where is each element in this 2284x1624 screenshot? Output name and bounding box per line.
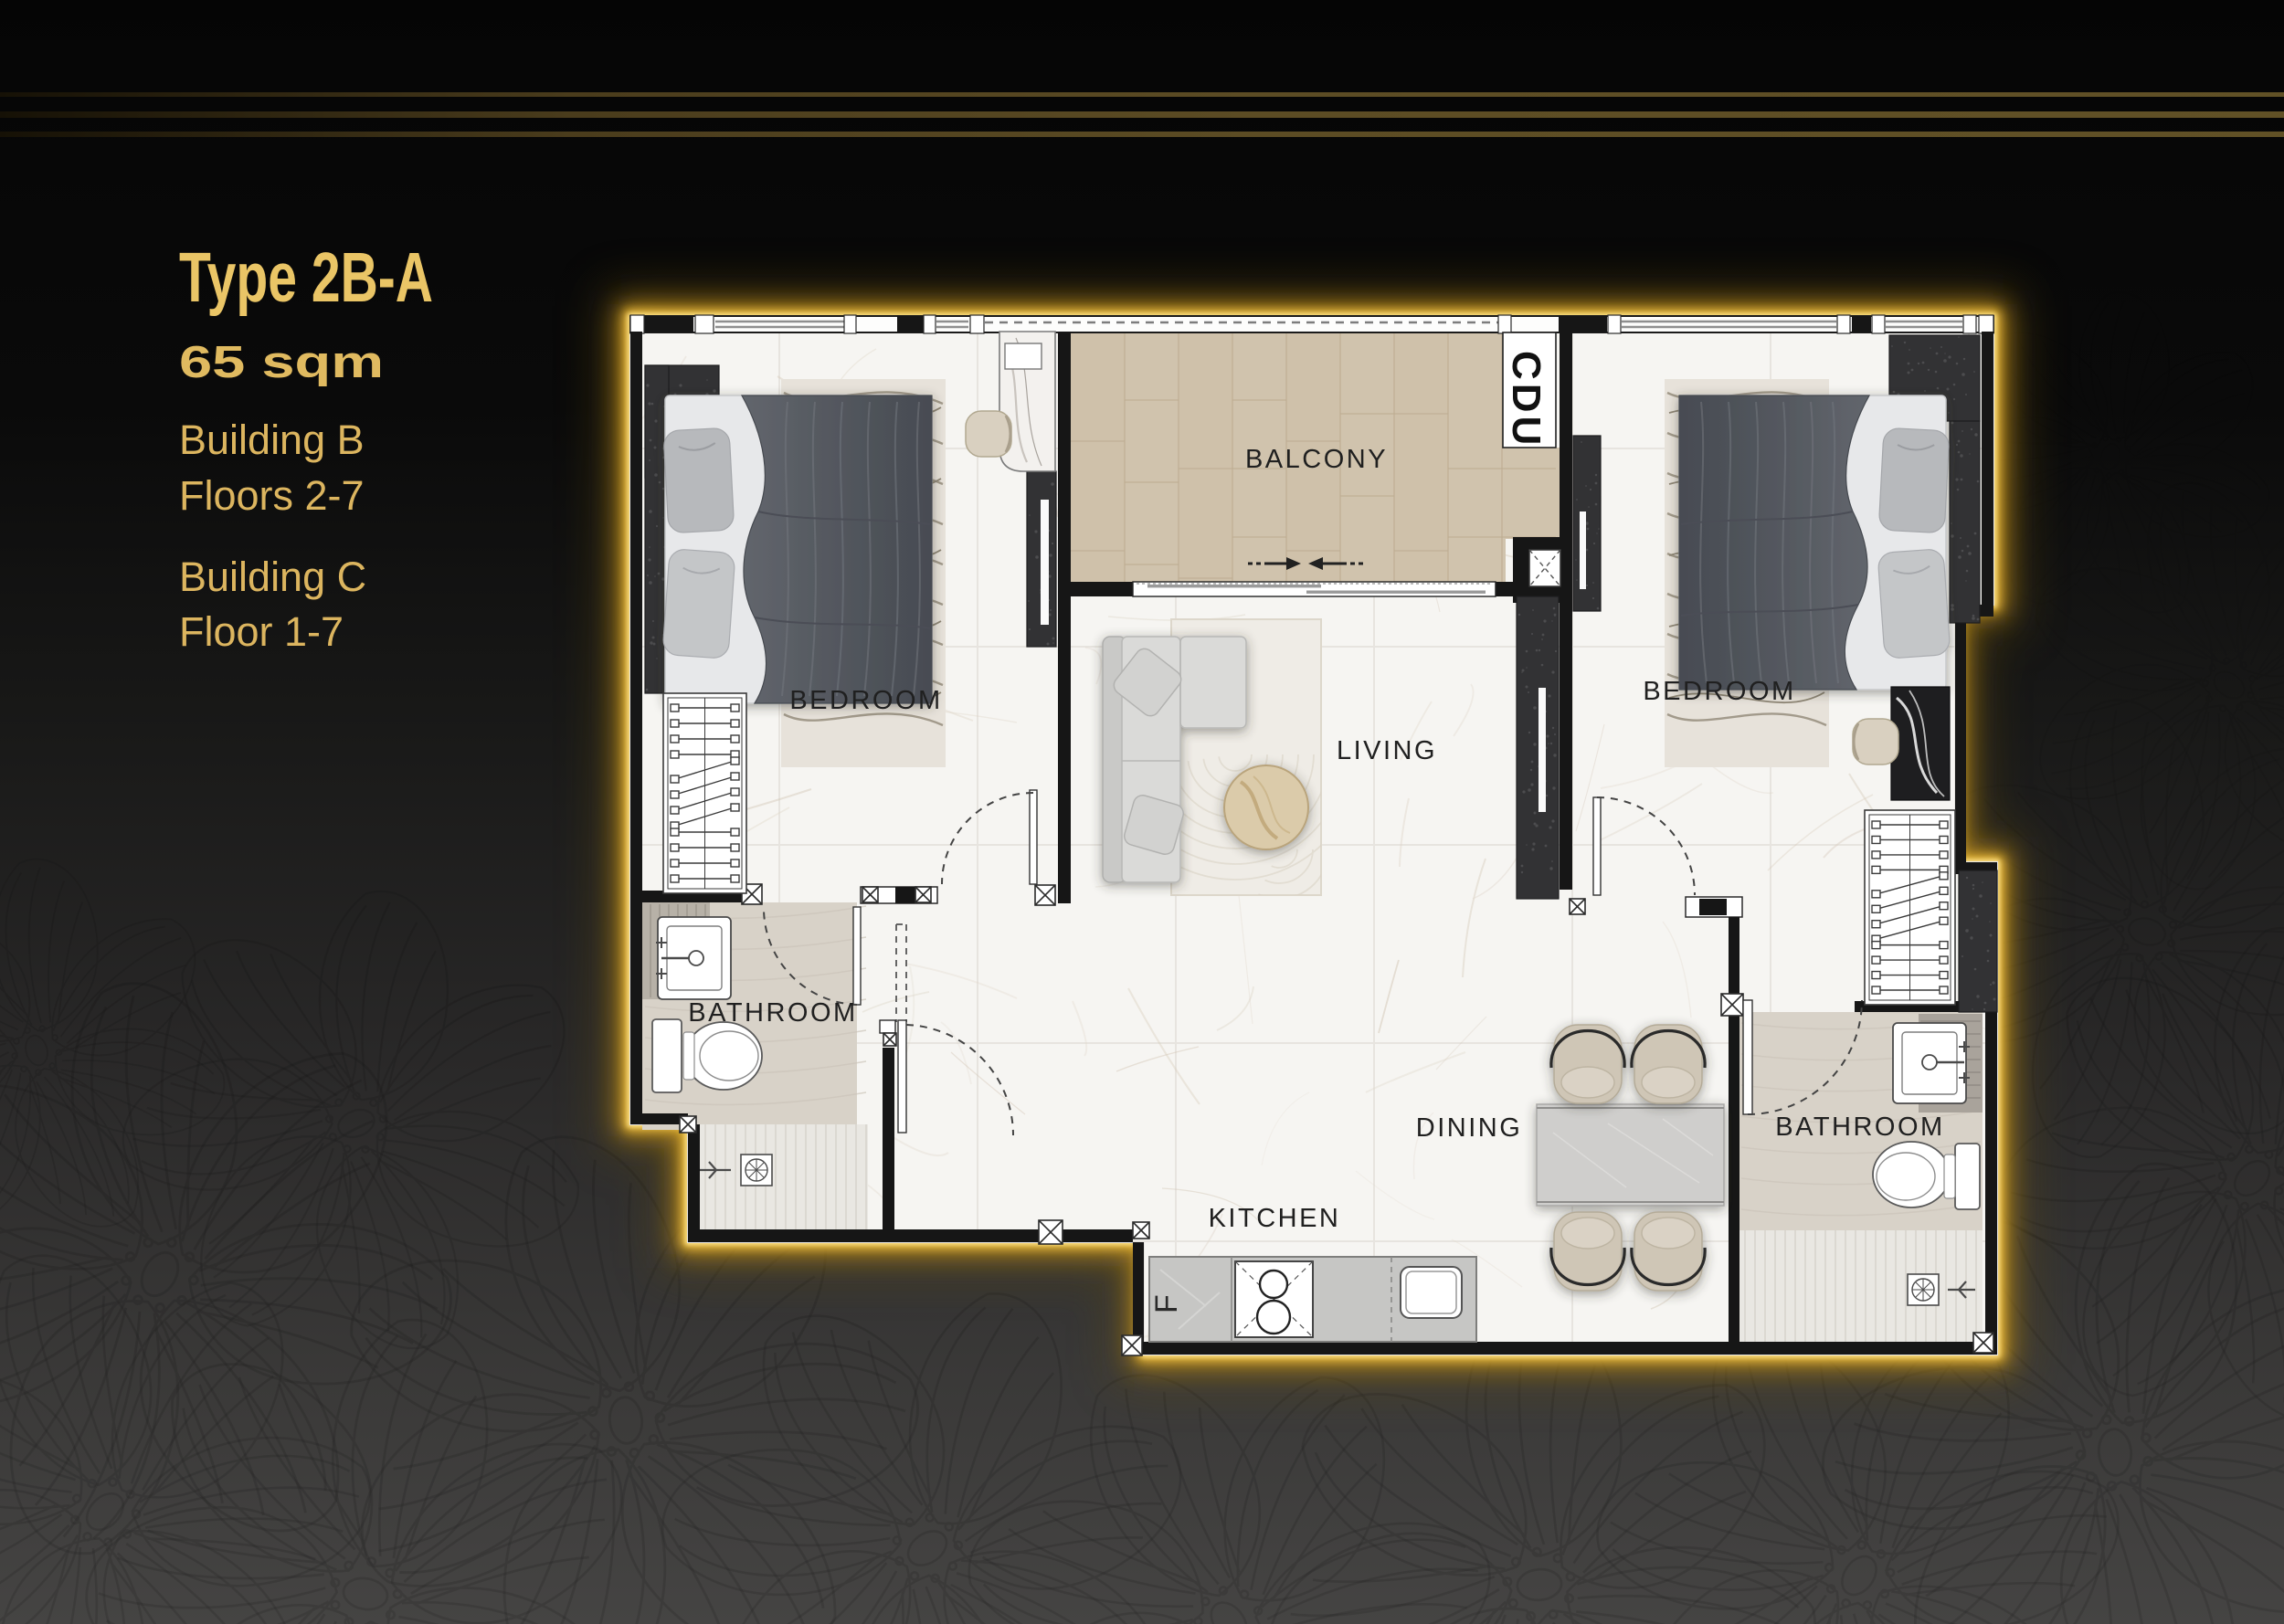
svg-text:Building B: Building B xyxy=(179,417,365,463)
svg-text:F: F xyxy=(1149,1294,1184,1313)
svg-text:BATHROOM: BATHROOM xyxy=(688,998,857,1028)
svg-text:KITCHEN: KITCHEN xyxy=(1209,1204,1341,1233)
svg-text:BATHROOM: BATHROOM xyxy=(1775,1113,1944,1142)
svg-text:Floor 1-7: Floor 1-7 xyxy=(179,608,344,655)
svg-text:65 sqm: 65 sqm xyxy=(179,338,384,387)
svg-text:Building C: Building C xyxy=(179,554,366,600)
svg-text:Floors 2-7: Floors 2-7 xyxy=(179,472,365,519)
svg-text:BALCONY: BALCONY xyxy=(1245,445,1388,474)
svg-text:Type 2B-A: Type 2B-A xyxy=(179,238,433,317)
svg-text:CDU: CDU xyxy=(1504,351,1549,448)
svg-text:BEDROOM: BEDROOM xyxy=(1643,677,1795,706)
svg-text:LIVING: LIVING xyxy=(1337,736,1437,765)
svg-text:DINING: DINING xyxy=(1416,1113,1523,1143)
svg-text:BEDROOM: BEDROOM xyxy=(789,686,942,715)
